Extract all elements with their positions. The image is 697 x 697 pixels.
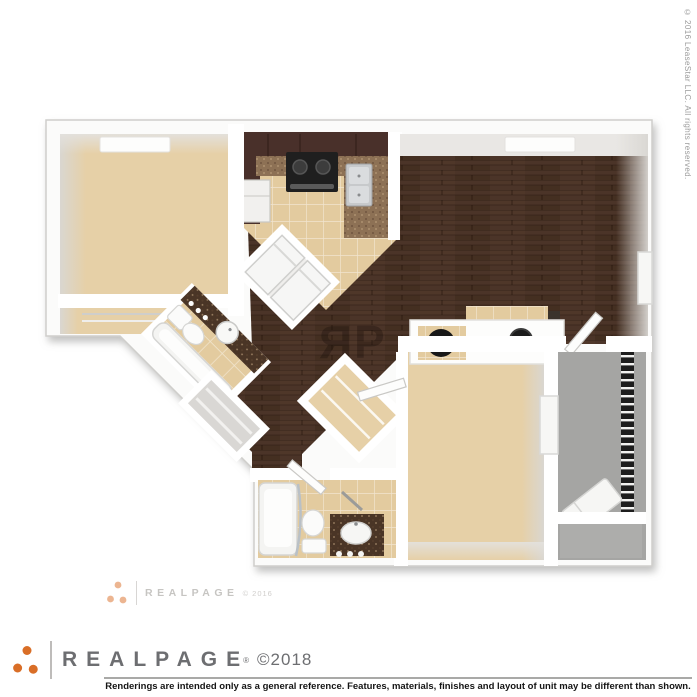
watermark-year: © 2016 <box>243 589 273 598</box>
registered-mark: ® <box>243 656 249 665</box>
window <box>540 396 558 454</box>
floorplan-page: R P <box>0 0 697 697</box>
disclaimer-text: Renderings are intended only as a genera… <box>104 681 692 692</box>
plan-watermark: REALPAGE © 2016 <box>106 580 273 606</box>
ceiling-light <box>505 137 575 152</box>
kitchen-sink <box>346 164 372 206</box>
ceiling-light <box>100 137 170 152</box>
toilet <box>302 510 324 536</box>
balcony <box>540 344 646 566</box>
stove <box>286 152 338 192</box>
room-bedroom-2 <box>396 348 544 566</box>
footer-divider-line <box>104 677 692 679</box>
watermark-divider <box>136 581 137 605</box>
room-bedroom-1 <box>60 134 230 296</box>
toilet <box>302 539 326 553</box>
footer-copyright-year: ©2018 <box>257 650 312 670</box>
side-copyright-text: © 2016 LeaseStar LLC. All rights reserve… <box>683 8 692 180</box>
watermark-wordmark: REALPAGE <box>145 587 239 599</box>
footer-wordmark: REALPAGE <box>62 648 249 672</box>
wall <box>228 124 244 316</box>
brand-footer: REALPAGE® ©2018 <box>12 641 312 679</box>
refrigerator <box>242 180 270 222</box>
footer-divider <box>50 641 52 679</box>
svg-text:P: P <box>354 316 385 368</box>
window <box>638 252 652 304</box>
realpage-logo-mark-icon <box>106 580 130 606</box>
balcony-storage <box>560 524 642 558</box>
floorplan-rendering: R P <box>0 0 697 697</box>
realpage-logo-mark-icon <box>12 644 42 677</box>
